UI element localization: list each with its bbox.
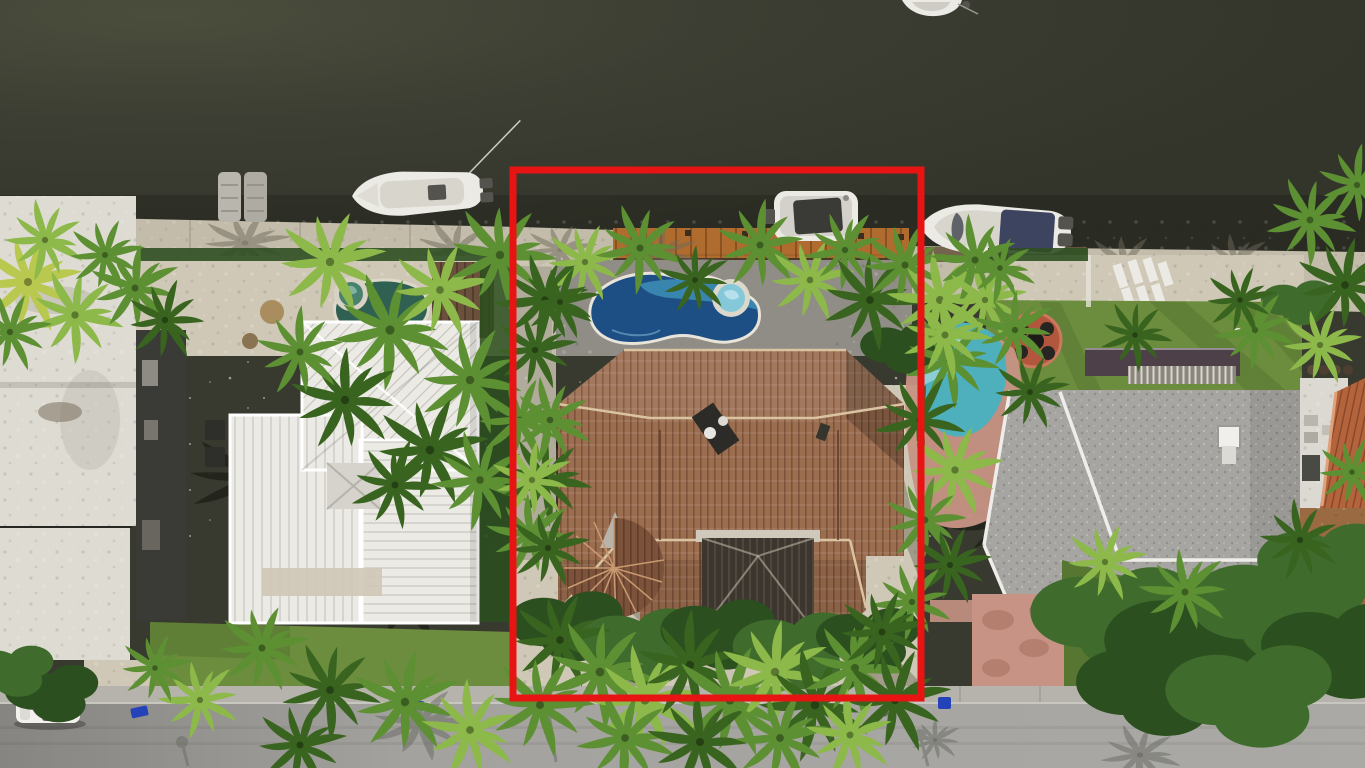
skylight-window (205, 447, 225, 467)
front-steps (262, 568, 382, 596)
left-side-courtyard (136, 330, 186, 620)
patio-table (242, 333, 258, 349)
roof-stain (38, 402, 82, 422)
slat-fence (1128, 366, 1236, 384)
dome-vent (704, 427, 716, 439)
skylight-window (205, 420, 225, 440)
pontoon-boat (764, 191, 858, 241)
aerial-photo: Aerial drone view of a waterfront estate… (0, 0, 1365, 768)
chimney (1218, 426, 1240, 448)
ac-unit (1304, 432, 1318, 443)
chimney-base (1222, 446, 1236, 464)
equipment (1302, 455, 1320, 481)
ac-unit (1304, 415, 1318, 426)
aerial-photo-svg: Aerial drone view of a waterfront estate… (0, 0, 1365, 768)
blue-bin (938, 697, 951, 709)
white-fence (1086, 255, 1091, 307)
patio-umbrella (260, 300, 284, 324)
dome-vent (718, 416, 728, 426)
